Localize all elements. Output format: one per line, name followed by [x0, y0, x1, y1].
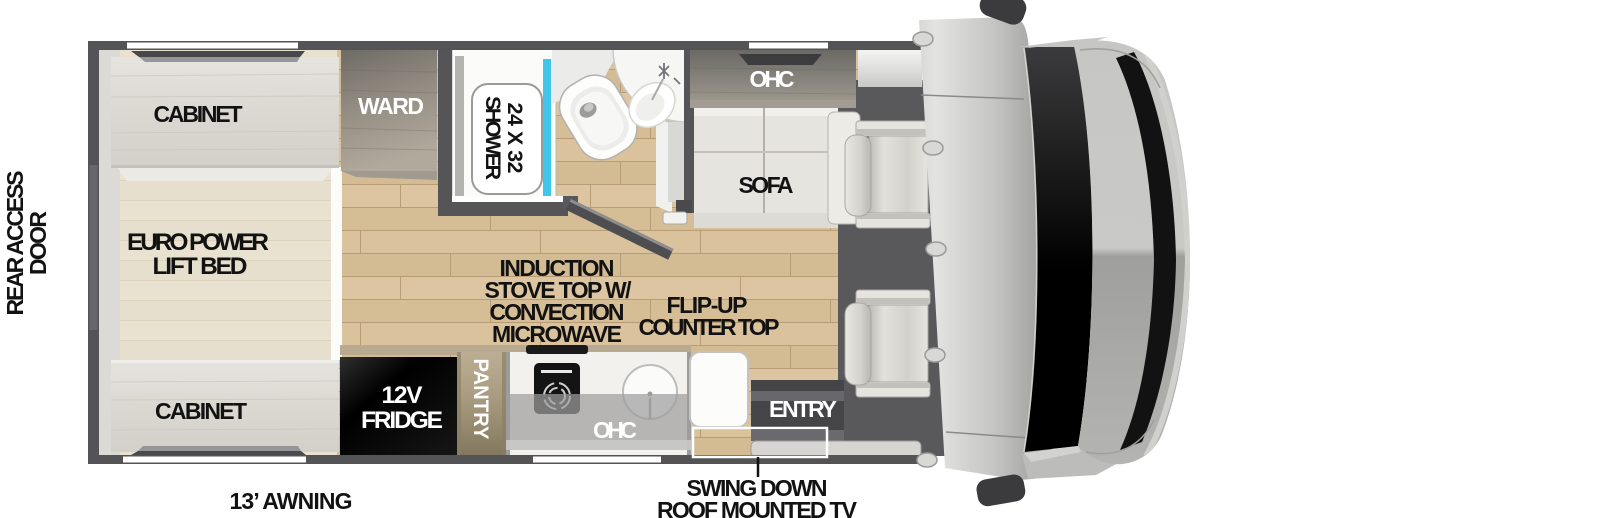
svg-text:ENTRY: ENTRY [769, 396, 837, 422]
svg-text:24 X 32: 24 X 32 [503, 103, 527, 174]
svg-text:SOFA: SOFA [739, 172, 794, 198]
svg-text:12V: 12V [382, 382, 424, 409]
svg-text:ROOF MOUNTED TV: ROOF MOUNTED TV [657, 497, 858, 518]
svg-text:COUNTER TOP: COUNTER TOP [639, 314, 780, 340]
svg-text:WARD: WARD [358, 93, 424, 119]
svg-text:MICROWAVE: MICROWAVE [492, 321, 622, 347]
svg-text:SHOWER: SHOWER [481, 96, 505, 180]
svg-text:DOOR: DOOR [25, 211, 51, 275]
svg-text:LIFT BED: LIFT BED [153, 253, 248, 280]
svg-text:OHC: OHC [593, 417, 637, 443]
svg-text:FRIDGE: FRIDGE [361, 407, 443, 434]
svg-text:OHC: OHC [750, 66, 795, 92]
svg-text:PANTRY: PANTRY [469, 359, 493, 440]
svg-text:EURO POWER: EURO POWER [127, 229, 269, 256]
svg-text:13’ AWNING: 13’ AWNING [230, 488, 353, 514]
svg-text:CABINET: CABINET [155, 398, 247, 424]
svg-text:CABINET: CABINET [154, 101, 243, 127]
